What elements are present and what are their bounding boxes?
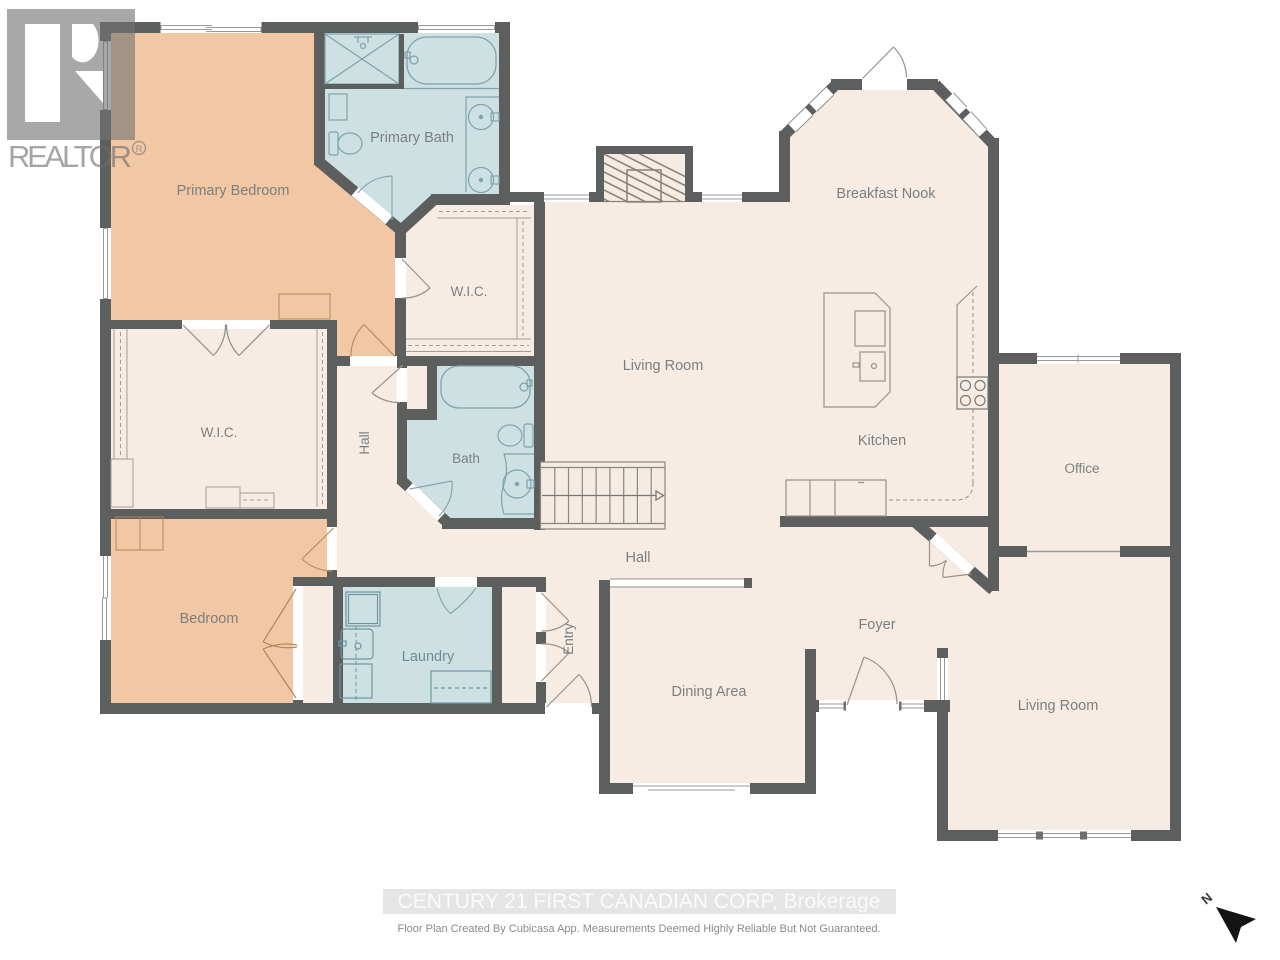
svg-text:Living Room: Living Room	[1018, 698, 1099, 714]
svg-text:Floor Plan Created By Cubicasa: Floor Plan Created By Cubicasa App. Meas…	[397, 923, 880, 935]
svg-text:R: R	[136, 144, 143, 155]
svg-text:Hall: Hall	[357, 431, 372, 454]
svg-text:Primary Bedroom: Primary Bedroom	[177, 183, 290, 199]
svg-text:W.I.C.: W.I.C.	[201, 425, 238, 440]
svg-text:Hall: Hall	[626, 550, 651, 566]
svg-text:Foyer: Foyer	[858, 617, 895, 633]
svg-text:Bath: Bath	[452, 451, 480, 466]
svg-text:Primary Bath: Primary Bath	[370, 130, 454, 146]
svg-text:REALTOR: REALTOR	[8, 139, 132, 174]
svg-text:Living Room: Living Room	[623, 358, 704, 374]
svg-text:Kitchen: Kitchen	[858, 433, 906, 449]
svg-text:Dining Area: Dining Area	[672, 684, 748, 700]
svg-text:Office: Office	[1064, 461, 1099, 476]
svg-text:W.I.C.: W.I.C.	[451, 284, 488, 299]
svg-text:Laundry: Laundry	[402, 649, 455, 665]
svg-text:Entry: Entry	[561, 623, 576, 655]
svg-text:Bedroom: Bedroom	[180, 611, 239, 627]
svg-text:Breakfast Nook: Breakfast Nook	[836, 186, 936, 202]
svg-text:CENTURY 21 FIRST CANADIAN CORP: CENTURY 21 FIRST CANADIAN CORP, Brokerag…	[398, 890, 881, 913]
